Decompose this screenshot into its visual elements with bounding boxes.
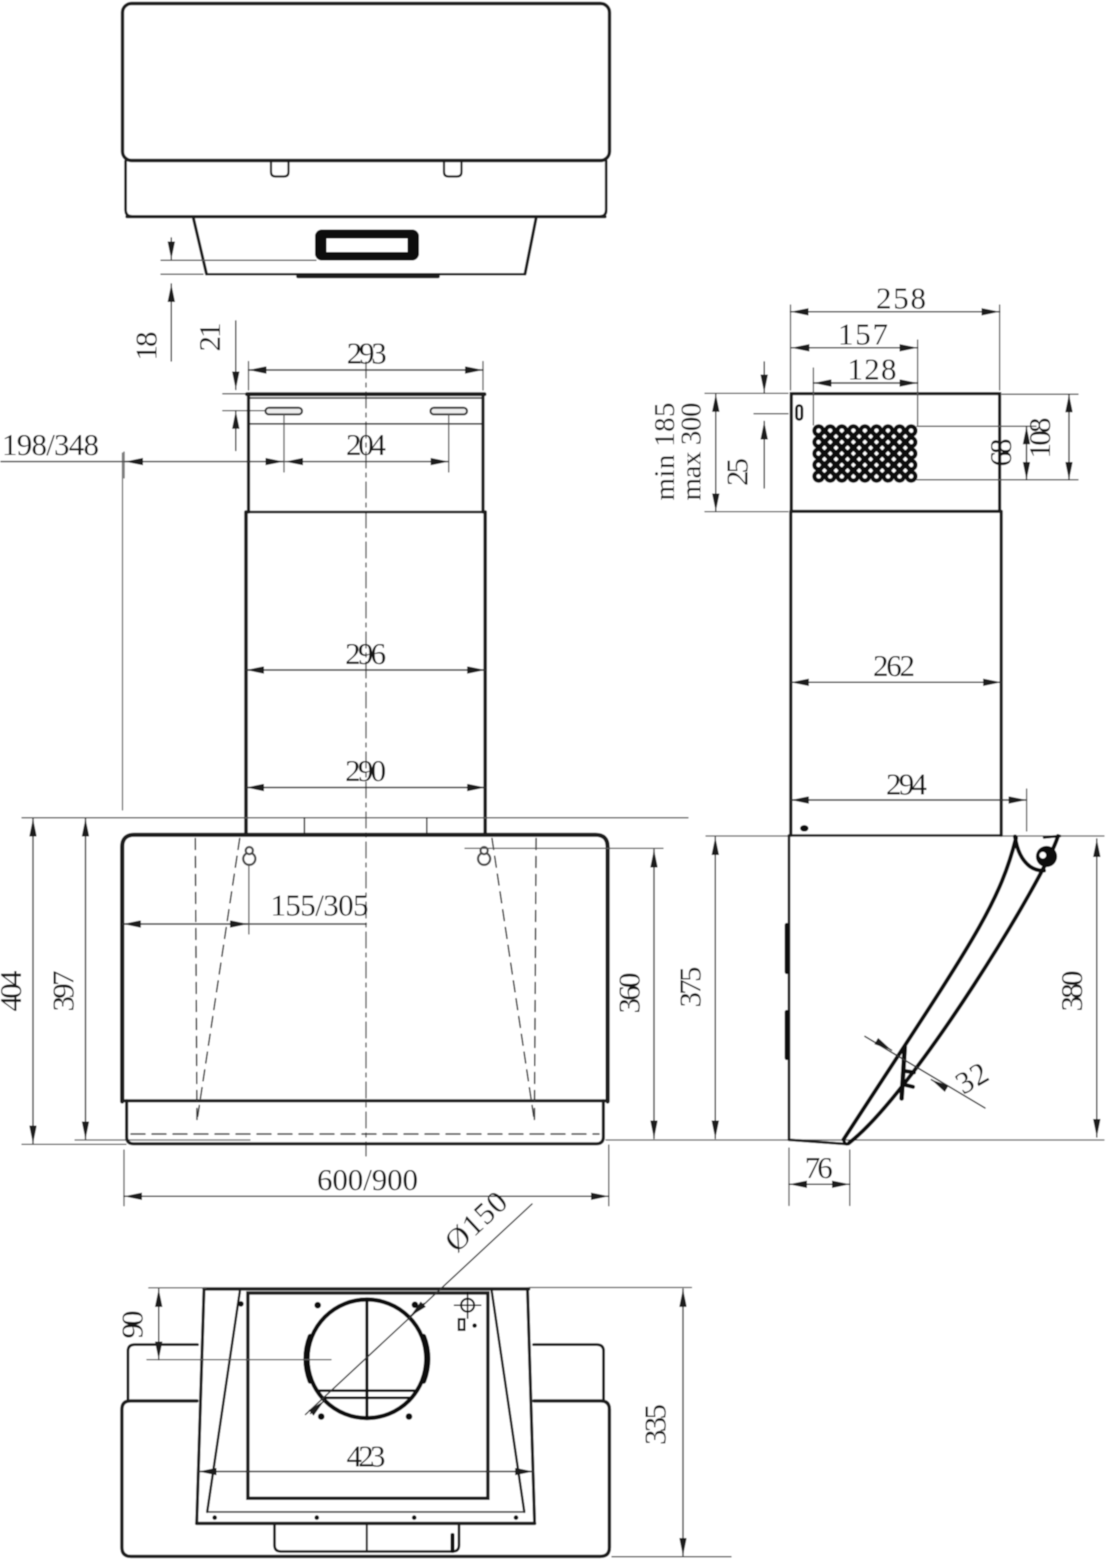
svg-text:293: 293 [347,336,387,371]
svg-text:18: 18 [129,332,164,361]
svg-text:296: 296 [345,636,386,671]
svg-text:375: 375 [673,967,708,1008]
svg-text:397: 397 [46,971,81,1012]
svg-text:68: 68 [983,439,1018,467]
svg-text:600/900: 600/900 [317,1162,418,1197]
svg-text:404: 404 [0,970,28,1012]
svg-text:76: 76 [805,1150,833,1185]
svg-text:108: 108 [1022,418,1057,459]
svg-text:204: 204 [346,427,387,462]
svg-text:294: 294 [886,767,928,802]
svg-text:25: 25 [720,458,755,486]
svg-text:21: 21 [192,323,227,352]
svg-text:423: 423 [347,1438,386,1473]
svg-text:262: 262 [873,648,915,683]
svg-text:335: 335 [638,1404,673,1445]
svg-text:360: 360 [612,973,647,1014]
svg-text:380: 380 [1054,971,1089,1012]
svg-text:128: 128 [848,352,897,387]
svg-text:290: 290 [345,753,386,788]
svg-text:258: 258 [876,281,926,316]
svg-text:155/305: 155/305 [271,888,369,923]
svg-text:90: 90 [115,1311,150,1339]
svg-text:198/348: 198/348 [2,427,99,462]
svg-text:157: 157 [838,316,888,351]
svg-text:max 300: max 300 [675,403,707,501]
